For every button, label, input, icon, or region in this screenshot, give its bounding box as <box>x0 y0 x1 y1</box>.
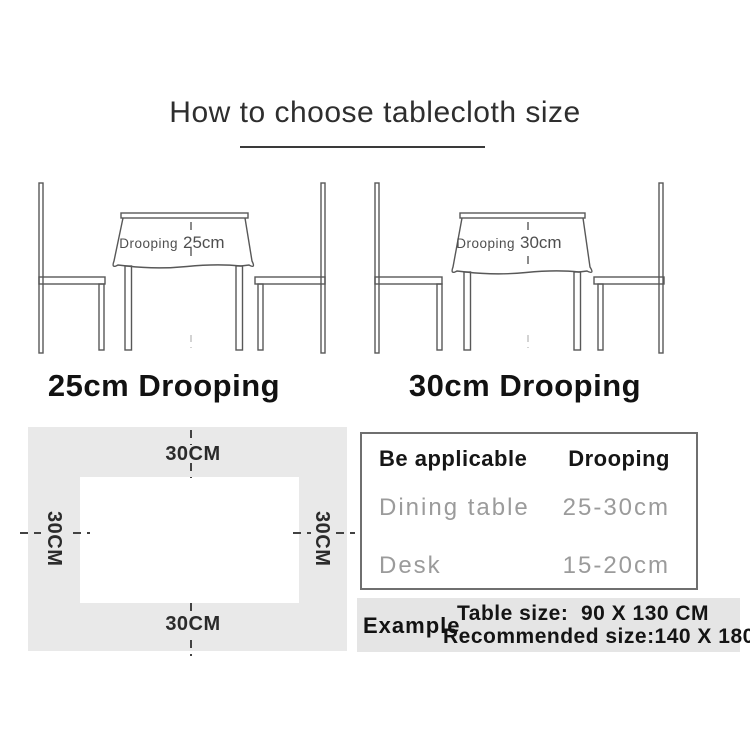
drooping-guide-table: Be applicable Drooping Dining table 25-3… <box>360 432 698 590</box>
chair-back-icon <box>39 183 43 353</box>
cell-drooping: 15-20cm <box>552 552 670 580</box>
table-leg-icon <box>236 266 243 350</box>
cell-drooping: 25-30cm <box>552 494 670 522</box>
cell-use: Desk <box>379 552 442 580</box>
measure-dash-icon <box>336 532 355 534</box>
chair-leg-icon <box>258 284 263 350</box>
measure-dash-icon <box>20 532 41 534</box>
chair-leg-icon <box>99 284 104 350</box>
guide-table-header-row: Be applicable Drooping <box>362 446 696 474</box>
chair-seat-icon <box>39 277 105 284</box>
example-strip: Example Table size: 90 X 130 CM Recommen… <box>357 598 740 652</box>
table-illustration-25cm: Drooping 25cm <box>30 177 330 357</box>
infographic-page: How to choose tablecloth size Drooping 2 <box>0 0 750 750</box>
chair-back-icon <box>321 183 325 353</box>
page-title: How to choose tablecloth size <box>0 96 750 130</box>
drooping-label: Drooping <box>456 236 515 251</box>
example-table-size: Table size: 90 X 130 CM <box>457 602 709 626</box>
measure-dash-icon <box>293 532 311 534</box>
header-drooping: Drooping <box>552 446 670 472</box>
drooping-value: 25cm <box>183 233 225 252</box>
title-underline <box>240 146 485 148</box>
measure-dash-icon <box>73 532 90 534</box>
chair-leg-icon <box>598 284 603 350</box>
table-top-icon <box>121 213 248 218</box>
chair-seat-icon <box>375 277 442 284</box>
table-surface-rect <box>80 477 299 603</box>
caption-30cm-drooping: 30cm Drooping <box>395 368 655 404</box>
table-row: Desk 15-20cm <box>362 552 696 580</box>
margin-label-right: 30CM <box>310 511 333 566</box>
margin-label-left: 30CM <box>42 511 65 566</box>
table-leg-icon <box>464 272 471 350</box>
table-row: Dining table 25-30cm <box>362 494 696 522</box>
chair-seat-icon <box>594 277 664 284</box>
header-be-applicable: Be applicable <box>379 446 527 472</box>
drooping-label: Drooping <box>119 236 178 251</box>
drooping-value: 30cm <box>520 233 562 252</box>
measure-dash-icon <box>190 640 192 656</box>
caption-25cm-drooping: 25cm Drooping <box>34 368 294 404</box>
cell-use: Dining table <box>379 494 530 522</box>
example-recommended-size: Recommended size:140 X 180 CM <box>443 625 750 649</box>
table-leg-icon <box>125 266 132 350</box>
table-top-icon <box>460 213 585 218</box>
chair-back-icon <box>659 183 663 353</box>
margin-label-top: 30CM <box>153 443 233 466</box>
margin-label-bottom: 30CM <box>153 613 233 636</box>
chair-leg-icon <box>437 284 442 350</box>
table-illustration-30cm: Drooping 30cm <box>370 177 670 357</box>
chair-back-icon <box>375 183 379 353</box>
chair-seat-icon <box>255 277 325 284</box>
table-leg-icon <box>574 272 581 350</box>
